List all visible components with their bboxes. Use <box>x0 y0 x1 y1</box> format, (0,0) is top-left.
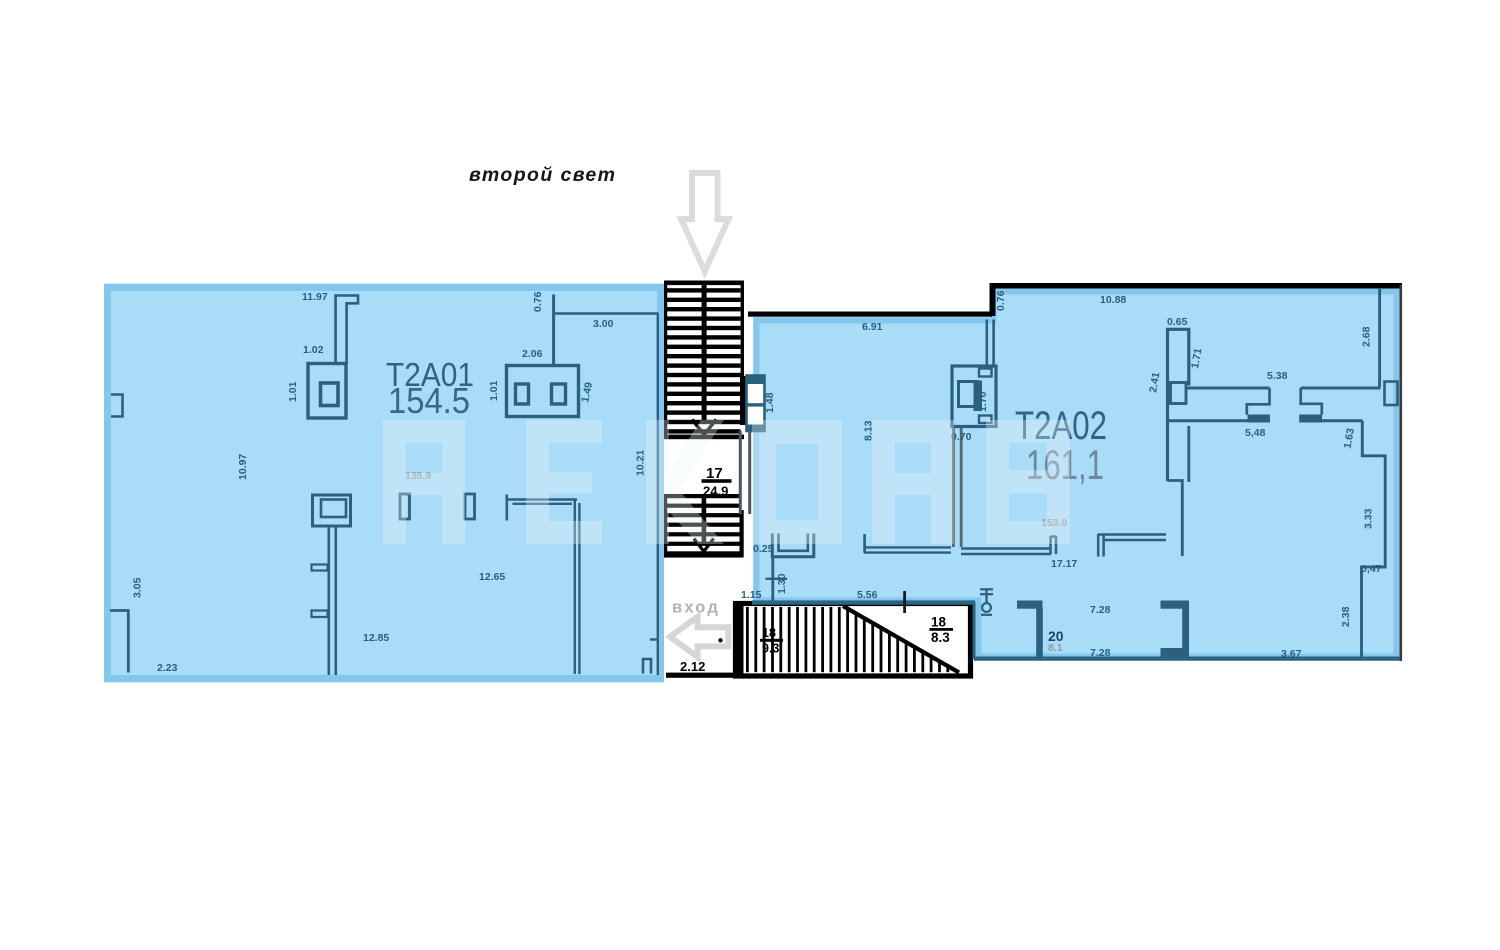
svg-text:10.88: 10.88 <box>1100 294 1126 306</box>
svg-text:5.38: 5.38 <box>1267 370 1288 382</box>
svg-text:0.25: 0.25 <box>753 543 774 555</box>
svg-text:3.33: 3.33 <box>1363 508 1375 529</box>
svg-text:0.70: 0.70 <box>951 431 972 443</box>
svg-text:3.05: 3.05 <box>132 577 144 598</box>
svg-text:17.17: 17.17 <box>1051 558 1077 570</box>
svg-text:второй свет: второй свет <box>469 164 616 186</box>
svg-text:18: 18 <box>931 615 947 630</box>
svg-text:7.28: 7.28 <box>1090 647 1111 659</box>
svg-text:2.06: 2.06 <box>522 348 543 360</box>
svg-text:1.01: 1.01 <box>488 380 500 401</box>
svg-text:2.38: 2.38 <box>1340 606 1352 627</box>
svg-text:1.48: 1.48 <box>764 392 776 413</box>
svg-text:10.21: 10.21 <box>635 450 647 476</box>
svg-text:1.02: 1.02 <box>303 344 324 356</box>
svg-text:10.97: 10.97 <box>237 454 249 480</box>
svg-text:2.23: 2.23 <box>157 662 178 674</box>
svg-text:1.01: 1.01 <box>287 381 299 402</box>
svg-text:11.97: 11.97 <box>302 291 328 303</box>
svg-text:1.15: 1.15 <box>741 589 762 601</box>
svg-text:0.76: 0.76 <box>995 290 1007 311</box>
svg-text:1.30: 1.30 <box>776 573 788 594</box>
svg-text:6.91: 6.91 <box>862 321 883 333</box>
svg-text:вход: вход <box>672 599 720 617</box>
svg-text:154.5: 154.5 <box>388 380 470 421</box>
svg-text:2.12: 2.12 <box>680 659 705 674</box>
svg-text:12.65: 12.65 <box>479 571 505 583</box>
svg-text:5,48: 5,48 <box>1245 427 1266 439</box>
svg-text:0,47: 0,47 <box>1361 563 1382 575</box>
svg-text:5.56: 5.56 <box>857 589 878 601</box>
svg-text:3.00: 3.00 <box>593 318 614 330</box>
svg-text:0.76: 0.76 <box>532 291 544 312</box>
svg-text:18: 18 <box>762 626 776 640</box>
svg-text:8.1: 8.1 <box>1048 642 1063 654</box>
svg-text:1.70: 1.70 <box>977 391 989 412</box>
svg-text:0.65: 0.65 <box>1167 316 1188 328</box>
svg-text:12.85: 12.85 <box>363 632 389 644</box>
svg-text:9.3: 9.3 <box>762 642 779 656</box>
svg-text:8.3: 8.3 <box>931 630 950 645</box>
svg-text:7.28: 7.28 <box>1090 604 1111 616</box>
svg-text:2.68: 2.68 <box>1361 326 1373 347</box>
